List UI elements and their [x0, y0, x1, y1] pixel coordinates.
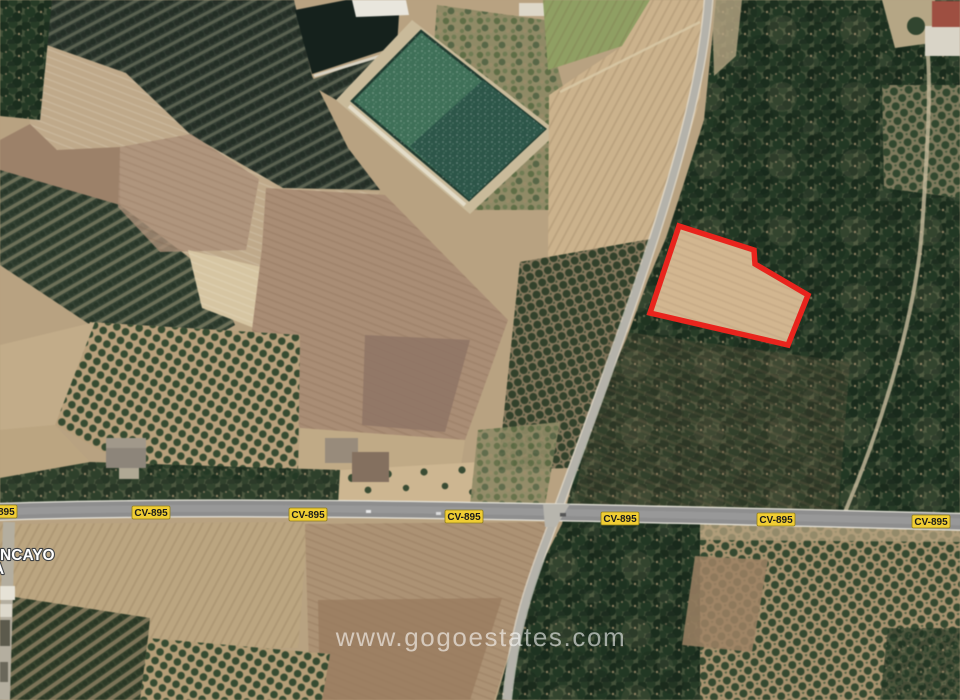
svg-text:CV-895: CV-895 [291, 510, 325, 521]
svg-text:CV-895: CV-895 [0, 507, 15, 518]
svg-text:www.gogoestates.com: www.gogoestates.com [335, 622, 627, 652]
svg-text:CV-895: CV-895 [134, 508, 168, 519]
svg-text:CV-895: CV-895 [447, 512, 481, 523]
svg-text:CV-895: CV-895 [914, 517, 948, 528]
svg-text:CV-895: CV-895 [759, 515, 793, 526]
svg-text:CV-895: CV-895 [603, 514, 637, 525]
svg-text:ONCAYO: ONCAYO [0, 547, 55, 564]
svg-text:A: A [0, 561, 4, 578]
